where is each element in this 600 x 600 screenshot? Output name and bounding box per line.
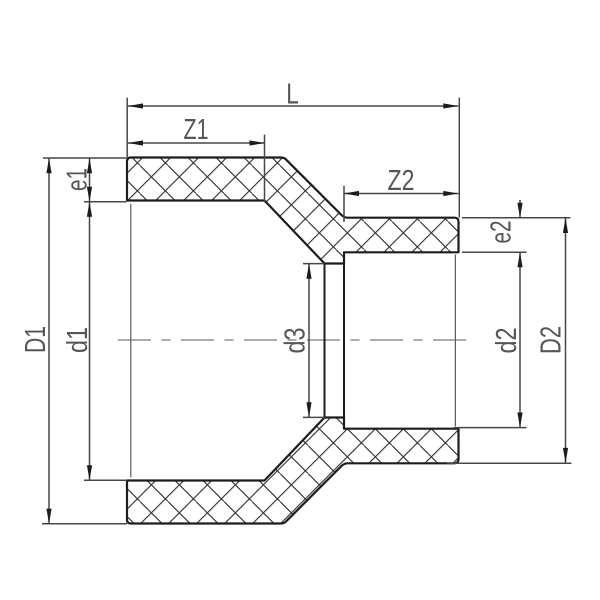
svg-text:D1: D1 — [20, 326, 52, 353]
svg-text:e1: e1 — [62, 168, 94, 191]
svg-text:d3: d3 — [280, 328, 312, 354]
svg-text:Z1: Z1 — [184, 114, 209, 146]
svg-text:d2: d2 — [491, 328, 523, 354]
svg-text:e2: e2 — [486, 221, 518, 244]
svg-text:Z2: Z2 — [388, 165, 415, 197]
svg-text:D2: D2 — [536, 326, 568, 354]
svg-text:d1: d1 — [62, 327, 94, 353]
svg-text:L: L — [286, 78, 299, 110]
